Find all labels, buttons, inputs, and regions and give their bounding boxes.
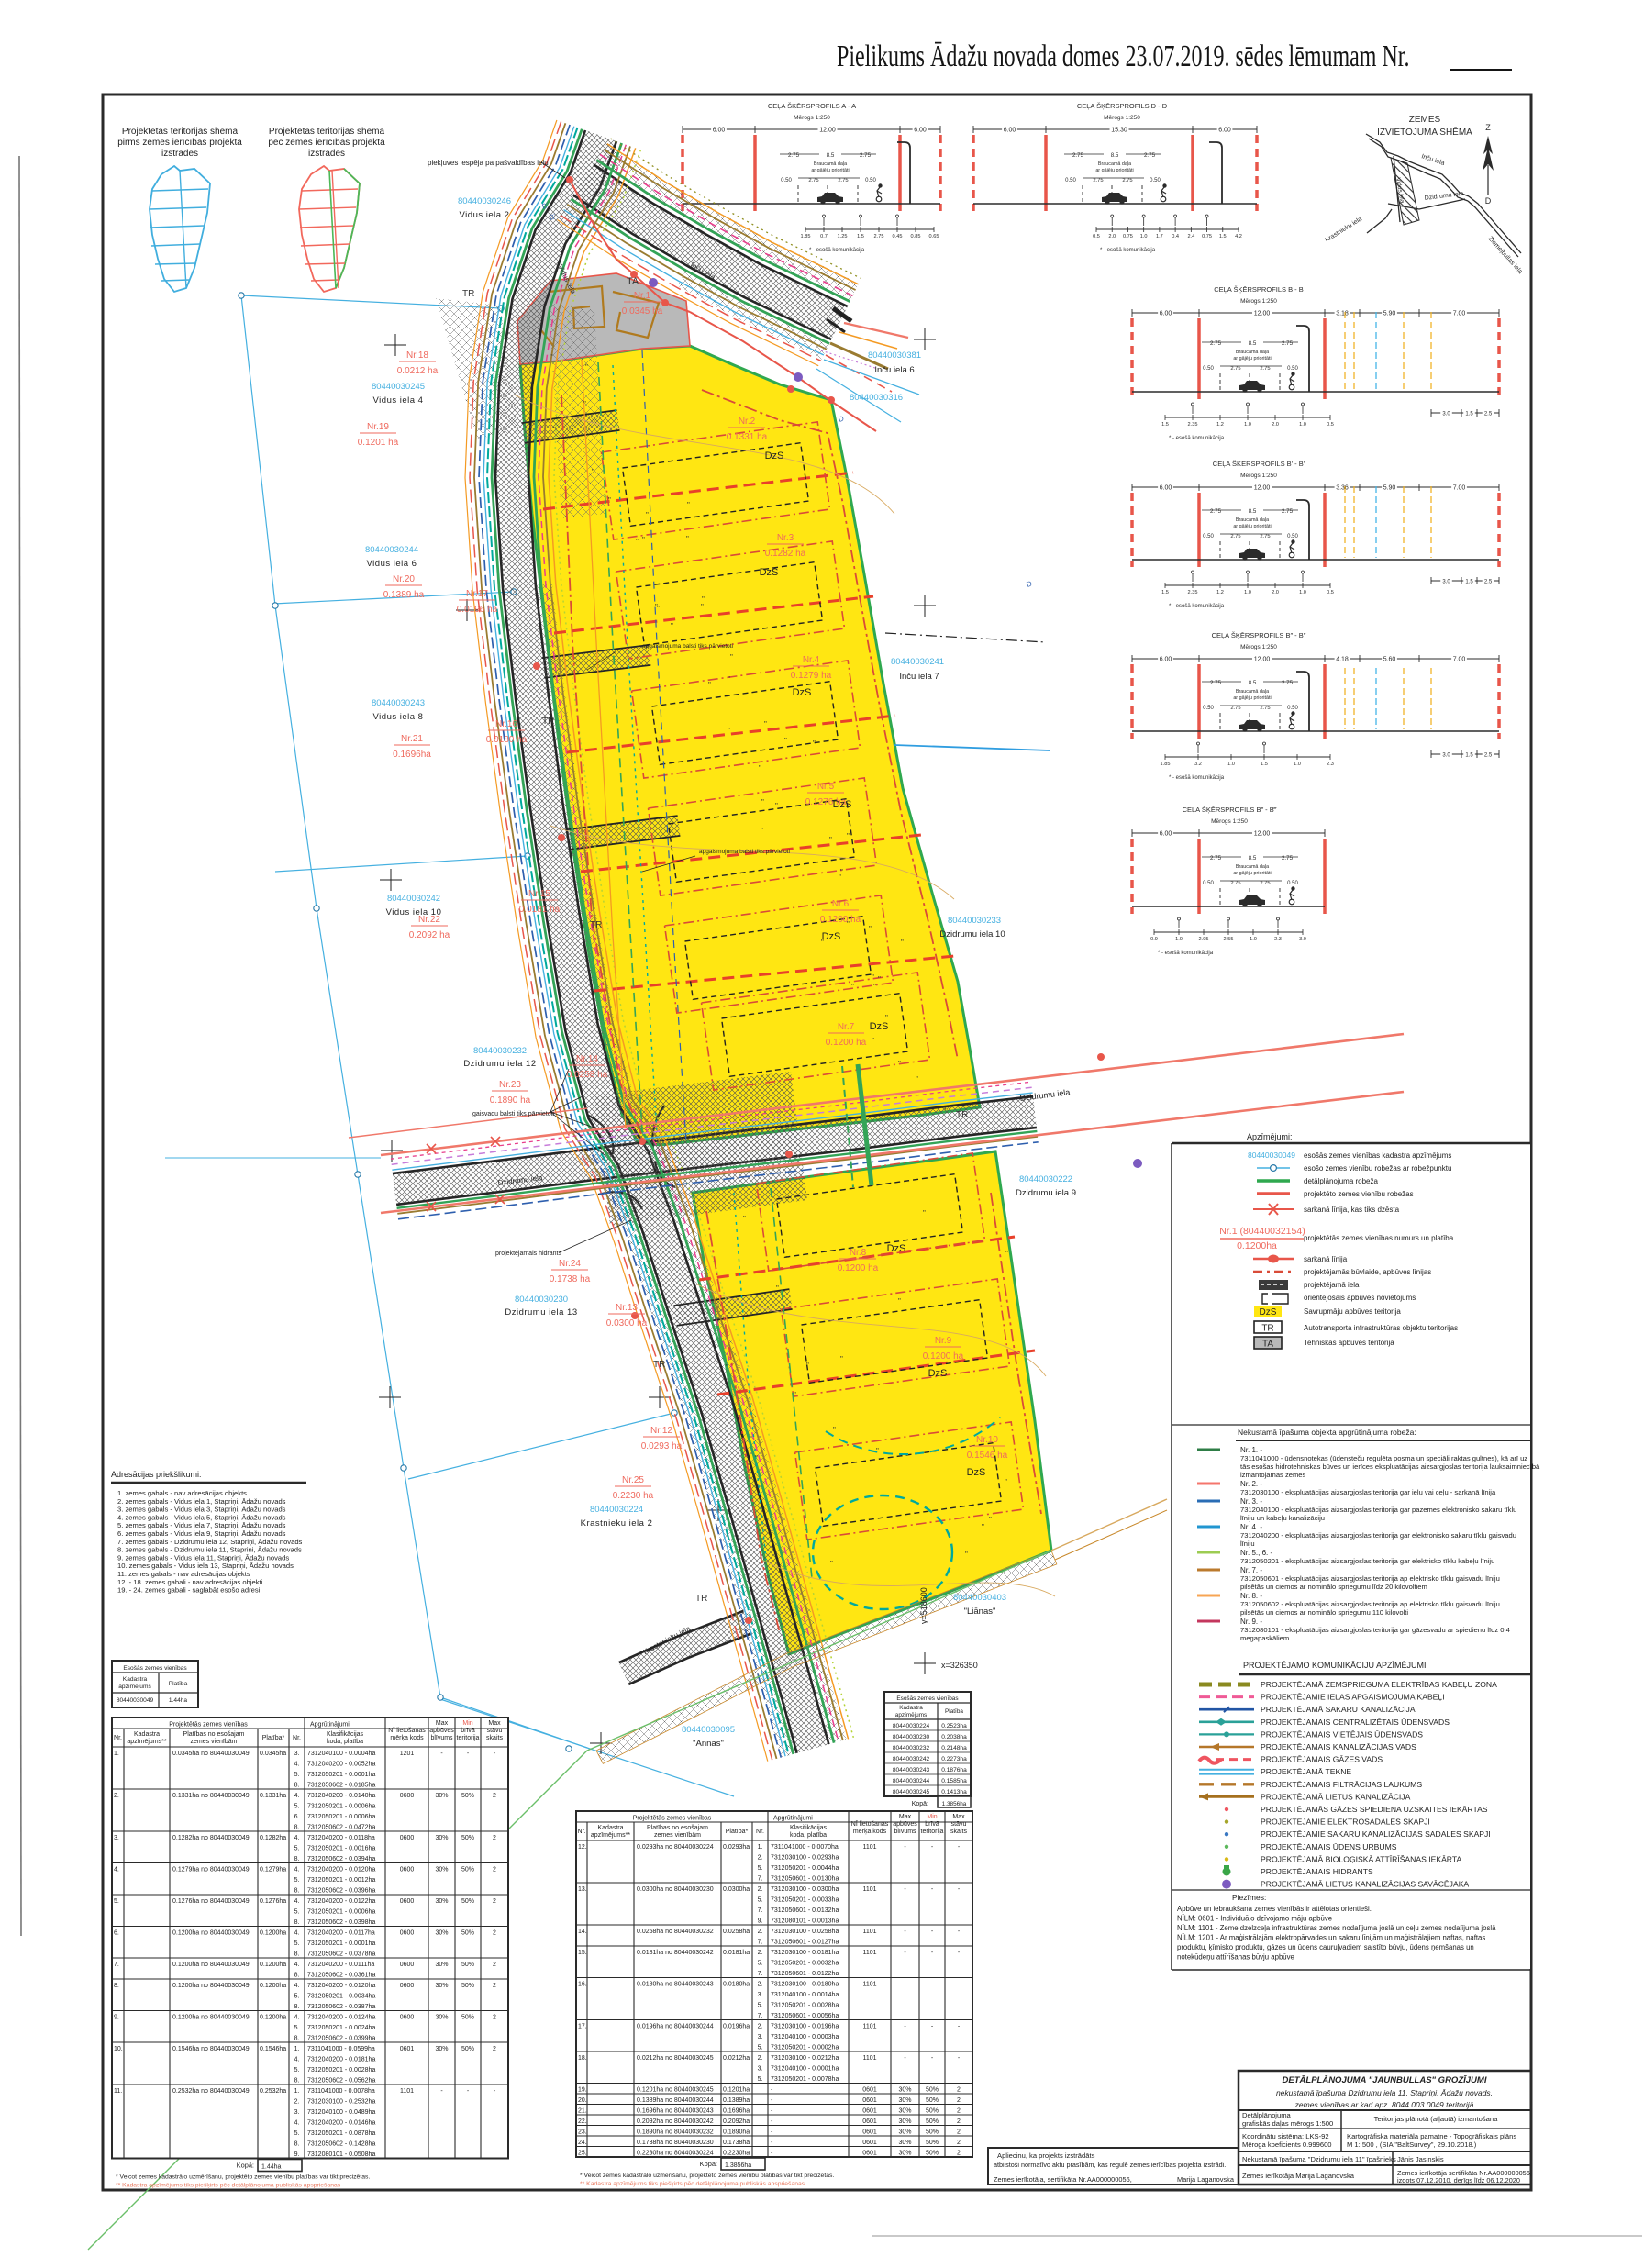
svg-text:2: 2 bbox=[957, 2087, 961, 2094]
svg-text:80440030243: 80440030243 bbox=[372, 698, 425, 708]
svg-text:Pielikums Ādažu novada domes 2: Pielikums Ādažu novada domes 23.07.2019.… bbox=[837, 39, 1409, 73]
svg-text:7312050602 - 0.0185ha: 7312050602 - 0.0185ha bbox=[307, 1783, 375, 1789]
svg-text:2.: 2. bbox=[758, 1982, 763, 1988]
svg-text:": " bbox=[839, 873, 841, 882]
svg-text:": " bbox=[776, 1284, 779, 1293]
svg-text:0.50: 0.50 bbox=[1203, 706, 1214, 711]
svg-text:0.0345ha no 80440030049: 0.0345ha no 80440030049 bbox=[172, 1751, 250, 1757]
svg-text:1.0: 1.0 bbox=[1244, 422, 1251, 428]
svg-text:30%: 30% bbox=[898, 2151, 911, 2157]
svg-text:": " bbox=[761, 798, 764, 806]
svg-text:Nekustamā īpašuma "Dzidrumu ie: Nekustamā īpašuma "Dzidrumu iela 11" īpa… bbox=[1242, 2155, 1396, 2163]
svg-text:Nr.22: Nr.22 bbox=[418, 915, 440, 925]
svg-text:2.: 2. bbox=[758, 2055, 763, 2062]
svg-text:80440030233: 80440030233 bbox=[948, 916, 1001, 926]
svg-text:7312040200 - 0.0052ha: 7312040200 - 0.0052ha bbox=[307, 1762, 375, 1768]
svg-text:30%: 30% bbox=[435, 1898, 448, 1905]
svg-text:4.: 4. bbox=[294, 1962, 300, 1968]
svg-text:4.: 4. bbox=[294, 1930, 300, 1937]
svg-text:7312050602 - ekspluatācijas ai: 7312050602 - ekspluatācijas aizsargjosla… bbox=[1240, 1600, 1500, 1608]
svg-text:0.5: 0.5 bbox=[1093, 234, 1100, 239]
svg-text:0.75: 0.75 bbox=[1123, 234, 1133, 239]
svg-text:PROJEKTĒJAMĀ LIETUS KANALIZĀCI: PROJEKTĒJAMĀ LIETUS KANALIZĀCIJAS SAVĀCĒ… bbox=[1261, 1880, 1469, 1889]
svg-text:80440030241: 80440030241 bbox=[891, 657, 944, 667]
svg-text:1.0: 1.0 bbox=[1294, 762, 1301, 767]
svg-text:0601: 0601 bbox=[862, 2151, 877, 2157]
svg-text:Dzidrumu iela: Dzidrumu iela bbox=[1019, 1087, 1071, 1103]
svg-text:D: D bbox=[1485, 196, 1492, 206]
svg-text:7312040100 - 0.0003ha: 7312040100 - 0.0003ha bbox=[771, 2034, 839, 2040]
svg-text:0.85: 0.85 bbox=[911, 234, 921, 239]
svg-text:2.75: 2.75 bbox=[1072, 152, 1084, 159]
svg-text:0.0293ha: 0.0293ha bbox=[723, 1844, 750, 1851]
svg-text:D: D bbox=[1026, 579, 1034, 589]
svg-text:2.75: 2.75 bbox=[1282, 340, 1294, 347]
svg-text:0.1546ha: 0.1546ha bbox=[260, 2046, 286, 2052]
svg-text:CEĻA ŠĶĒRSPROFILS B‴ - B‴: CEĻA ŠĶĒRSPROFILS B‴ - B‴ bbox=[1183, 806, 1277, 814]
svg-text:4.: 4. bbox=[294, 2015, 300, 2021]
svg-text:sarkanā līnija: sarkanā līnija bbox=[1304, 1255, 1348, 1263]
svg-text:PROJEKTĒJAMIE IELAS APGAISMOJU: PROJEKTĒJAMIE IELAS APGAISMOJUMA KABEĻI bbox=[1261, 1693, 1445, 1702]
svg-text:0.0258 ha: 0.0258 ha bbox=[567, 1070, 608, 1080]
svg-text:2.75: 2.75 bbox=[1230, 534, 1240, 539]
svg-text:20.: 20. bbox=[578, 2097, 587, 2104]
svg-text:2: 2 bbox=[957, 2129, 961, 2136]
svg-text:7312030100 - 0.0181ha: 7312030100 - 0.0181ha bbox=[771, 1950, 839, 1956]
svg-text:7312050201 - 0.0006ha: 7312050201 - 0.0006ha bbox=[307, 1814, 375, 1820]
svg-text:gaisvadu balsti tiks pārvietot: gaisvadu balsti tiks pārvietoti bbox=[472, 1111, 555, 1117]
svg-text:2.75: 2.75 bbox=[1260, 881, 1270, 886]
svg-text:1101: 1101 bbox=[862, 1950, 876, 1956]
svg-text:80440030381: 80440030381 bbox=[868, 350, 921, 361]
svg-text:14.: 14. bbox=[578, 1929, 587, 1935]
svg-text:Kopā:: Kopā: bbox=[237, 2162, 254, 2170]
svg-text:30%: 30% bbox=[435, 1867, 448, 1873]
svg-text:": " bbox=[1005, 1250, 1008, 1258]
svg-text:7311041000 - 0.0070ha: 7311041000 - 0.0070ha bbox=[771, 1844, 839, 1851]
svg-text:NĪLM: 1101 - Zeme dzelzceļa in: NĪLM: 1101 - Zeme dzelzceļa infrastruktū… bbox=[1177, 1924, 1496, 1932]
svg-text:3.2: 3.2 bbox=[1194, 762, 1202, 767]
svg-text:Max: Max bbox=[488, 1720, 501, 1727]
svg-text:0.0212 ha: 0.0212 ha bbox=[397, 366, 439, 376]
svg-text:Savrupmāju apbūves teritorija: Savrupmāju apbūves teritorija bbox=[1304, 1307, 1401, 1316]
svg-text:2.95: 2.95 bbox=[1199, 937, 1209, 942]
svg-text:": " bbox=[636, 538, 639, 546]
svg-text:2.75: 2.75 bbox=[808, 178, 818, 183]
svg-text:0.9: 0.9 bbox=[1150, 937, 1158, 942]
svg-text:": " bbox=[775, 802, 778, 810]
svg-text:": " bbox=[869, 925, 872, 933]
svg-text:4.18: 4.18 bbox=[1336, 657, 1349, 663]
svg-text:7312030100 - ekspluatācijas ai: 7312030100 - ekspluatācijas aizsargjosla… bbox=[1240, 1488, 1496, 1496]
svg-text:0.0181 ha: 0.0181 ha bbox=[519, 905, 561, 915]
svg-text:2: 2 bbox=[957, 2151, 961, 2157]
svg-text:50%: 50% bbox=[926, 2151, 939, 2157]
svg-text:2: 2 bbox=[957, 2108, 961, 2115]
svg-text:0.50: 0.50 bbox=[1287, 366, 1298, 372]
svg-text:80440030244: 80440030244 bbox=[893, 1778, 930, 1784]
svg-text:0.2092 ha: 0.2092 ha bbox=[409, 930, 450, 940]
svg-text:"Liānas": "Liānas" bbox=[964, 1606, 996, 1617]
svg-text:50%: 50% bbox=[461, 2046, 474, 2052]
svg-text:8.: 8. bbox=[114, 1983, 119, 1989]
svg-text:M 1: 500 , (SIA "BaltSurvey",: M 1: 500 , (SIA "BaltSurvey", 29.10.2018… bbox=[1347, 2140, 1477, 2149]
svg-text:0.5: 0.5 bbox=[1327, 422, 1334, 428]
svg-text:": " bbox=[560, 437, 562, 445]
svg-text:orientējošais apbūves novietoj: orientējošais apbūves novietojums bbox=[1304, 1294, 1416, 1302]
svg-text:30%: 30% bbox=[435, 2015, 448, 2021]
svg-text:7312050602 - 0.0562ha: 7312050602 - 0.0562ha bbox=[307, 2078, 375, 2085]
svg-text:7.: 7. bbox=[758, 1940, 763, 1946]
svg-text:7312050602 - 0.0394ha: 7312050602 - 0.0394ha bbox=[307, 1856, 375, 1862]
svg-text:80440030316: 80440030316 bbox=[850, 393, 903, 403]
svg-text:0.2230ha no 80440030224: 0.2230ha no 80440030224 bbox=[637, 2151, 714, 2157]
svg-text:0600: 0600 bbox=[400, 1930, 415, 1937]
svg-text:80440030403: 80440030403 bbox=[953, 1593, 1006, 1603]
svg-text:notekūdeņu attīrīšanas būvju a: notekūdeņu attīrīšanas būvju apbūve bbox=[1177, 1953, 1294, 1962]
svg-text:50%: 50% bbox=[926, 2140, 939, 2146]
svg-text:koda, platība: koda, platība bbox=[790, 1832, 827, 1839]
svg-text:": " bbox=[898, 1060, 901, 1068]
svg-text:1.0: 1.0 bbox=[1299, 590, 1306, 595]
svg-text:0.2273ha: 0.2273ha bbox=[941, 1756, 967, 1762]
svg-text:1101: 1101 bbox=[862, 1844, 876, 1851]
svg-text:apgaismojuma balsti tiks pārvi: apgaismojuma balsti tiks pārvietoti bbox=[642, 643, 733, 650]
svg-text:DzS: DzS bbox=[833, 799, 852, 810]
svg-text:5.: 5. bbox=[294, 1846, 300, 1852]
svg-text:3.18: 3.18 bbox=[1336, 311, 1349, 317]
svg-text:12.00: 12.00 bbox=[1254, 485, 1271, 492]
svg-text:atbilstoši normatīvo aktu pras: atbilstoši normatīvo aktu prasībām, kas … bbox=[994, 2161, 1226, 2169]
svg-text:Nr.4: Nr.4 bbox=[803, 655, 820, 665]
svg-text:NĪ lietošanas: NĪ lietošanas bbox=[388, 1727, 426, 1734]
svg-text:koda, platība: koda, platība bbox=[327, 1739, 363, 1745]
svg-text:7.: 7. bbox=[758, 1876, 763, 1883]
svg-text:7312040200 - 0.0140ha: 7312040200 - 0.0140ha bbox=[307, 1793, 375, 1799]
svg-text:Nr. 2. -: Nr. 2. - bbox=[1240, 1480, 1262, 1488]
svg-text:esošo zemes vienību robežas ar: esošo zemes vienību robežas ar robežpunk… bbox=[1304, 1164, 1451, 1173]
svg-text:8.: 8. bbox=[294, 1919, 300, 1926]
svg-text:PROJEKTĒJAMAIS CENTRALIZĒTAIS: PROJEKTĒJAMAIS CENTRALIZĒTAIS ŪDENSVADS bbox=[1261, 1718, 1450, 1727]
svg-text:2: 2 bbox=[493, 2015, 496, 2021]
svg-text:0.0181ha no 80440030242: 0.0181ha no 80440030242 bbox=[637, 1950, 714, 1956]
svg-text:6.: 6. bbox=[114, 1930, 119, 1937]
svg-text:zemes vienības ar kad.apz. 804: zemes vienības ar kad.apz. 8044 003 0049… bbox=[1294, 2100, 1474, 2109]
svg-text:Autotransporta infrastruktūras: Autotransporta infrastruktūras objektu t… bbox=[1304, 1324, 1458, 1332]
svg-text:80440030222: 80440030222 bbox=[1019, 1174, 1072, 1184]
svg-text:Esošās zemes vienības: Esošās zemes vienības bbox=[123, 1665, 187, 1672]
svg-text:": " bbox=[982, 1523, 984, 1531]
svg-text:1.5: 1.5 bbox=[857, 234, 864, 239]
svg-text:Nr.12: Nr.12 bbox=[650, 1426, 672, 1436]
svg-text:2.75: 2.75 bbox=[1230, 706, 1240, 711]
svg-text:6.00: 6.00 bbox=[1218, 128, 1231, 134]
svg-text:": " bbox=[872, 1037, 874, 1045]
svg-text:0.5: 0.5 bbox=[1327, 590, 1334, 595]
svg-text:** Kadastra apzīmējums tiks pi: ** Kadastra apzīmējums tiks piešķirts pē… bbox=[116, 2183, 341, 2189]
svg-text:CEĻA ŠĶĒRSPROFILS B' - B': CEĻA ŠĶĒRSPROFILS B' - B' bbox=[1213, 460, 1305, 468]
svg-text:8.5: 8.5 bbox=[1249, 680, 1257, 686]
svg-text:Nr.17: Nr.17 bbox=[466, 589, 488, 599]
svg-text:0.1890 ha: 0.1890 ha bbox=[490, 1095, 531, 1106]
svg-text:0.1200ha: 0.1200ha bbox=[1237, 1240, 1277, 1251]
svg-text:7312050602 - 0.0361ha: 7312050602 - 0.0361ha bbox=[307, 1973, 375, 1979]
svg-text:7312050201 - 0.0001ha: 7312050201 - 0.0001ha bbox=[307, 1940, 375, 1947]
svg-text:* Veicot zemes kadastrālo uzmē: * Veicot zemes kadastrālo uzmērīšanu, pr… bbox=[580, 2173, 834, 2179]
svg-text:80440030232: 80440030232 bbox=[473, 1046, 527, 1056]
svg-text:TA: TA bbox=[627, 276, 639, 287]
svg-text:2.5: 2.5 bbox=[1484, 412, 1493, 417]
svg-text:Dzidrumu iela 12: Dzidrumu iela 12 bbox=[463, 1059, 536, 1069]
svg-text:0.1696ha no 80440030243: 0.1696ha no 80440030243 bbox=[637, 2108, 714, 2115]
svg-text:2.75: 2.75 bbox=[1260, 366, 1270, 372]
svg-text:7312050201 - 0.0878ha: 7312050201 - 0.0878ha bbox=[307, 2130, 375, 2137]
svg-text:": " bbox=[878, 975, 881, 984]
svg-text:": " bbox=[702, 595, 705, 604]
svg-text:NĪ lietošanas: NĪ lietošanas bbox=[851, 1820, 889, 1828]
svg-text:Inču iela 6: Inču iela 6 bbox=[874, 365, 914, 375]
svg-text:Min: Min bbox=[927, 1814, 937, 1820]
svg-text:2: 2 bbox=[493, 1867, 496, 1873]
svg-text:7312050602 - 0.0396ha: 7312050602 - 0.0396ha bbox=[307, 1888, 375, 1895]
svg-text:2.: 2. bbox=[758, 1886, 763, 1893]
svg-text:Nr.16: Nr.16 bbox=[495, 719, 517, 729]
svg-text:apgaismojuma balsti tiks pārvi: apgaismojuma balsti tiks pārvietoti bbox=[699, 849, 790, 855]
svg-text:Kadastra: Kadastra bbox=[899, 1705, 923, 1711]
svg-text:Nr.3: Nr.3 bbox=[777, 533, 794, 543]
svg-text:mērķa kods: mērķa kods bbox=[390, 1735, 424, 1741]
svg-text:50%: 50% bbox=[461, 1835, 474, 1841]
svg-text:7312050201 - ekspluatācijas ai: 7312050201 - ekspluatācijas aizsargjosla… bbox=[1240, 1557, 1494, 1565]
svg-text:1.0: 1.0 bbox=[1244, 590, 1251, 595]
svg-text:Kartogrāfiska materiāla pamatn: Kartogrāfiska materiāla pamatne - Topogr… bbox=[1347, 2132, 1516, 2140]
svg-text:0.1201ha no 80440030245: 0.1201ha no 80440030245 bbox=[637, 2087, 714, 2094]
svg-text:": " bbox=[784, 737, 787, 745]
svg-text:DzS: DzS bbox=[870, 1021, 889, 1032]
svg-text:ar gājēju prioritāti: ar gājēju prioritāti bbox=[1233, 871, 1271, 876]
svg-text:": " bbox=[923, 1209, 926, 1217]
svg-text:": " bbox=[708, 681, 711, 689]
svg-text:zemes vienībām: zemes vienībām bbox=[191, 1739, 238, 1745]
svg-text:Braucamā daļa: Braucamā daļa bbox=[1236, 864, 1269, 870]
svg-text:": " bbox=[872, 973, 874, 982]
svg-text:pilsētās un ciemos ar nominālo: pilsētās un ciemos ar nominālo spriegumu… bbox=[1240, 1608, 1408, 1617]
svg-text:8.: 8. bbox=[294, 2036, 300, 2042]
svg-text:projektētās zemes vienības num: projektētās zemes vienības numurs un pla… bbox=[1304, 1234, 1454, 1242]
svg-text:CEĻA ŠĶĒRSPROFILS D - D: CEĻA ŠĶĒRSPROFILS D - D bbox=[1077, 102, 1168, 110]
svg-text:0.1200ha: 0.1200ha bbox=[260, 1983, 286, 1989]
svg-text:0.1201 ha: 0.1201 ha bbox=[358, 438, 399, 448]
svg-text:8.5: 8.5 bbox=[1249, 508, 1257, 515]
svg-text:1.5: 1.5 bbox=[1465, 412, 1473, 417]
svg-text:0.1200ha: 0.1200ha bbox=[260, 1930, 286, 1937]
svg-text:1. zemes gabals - nav adresāci: 1. zemes gabals - nav adresācijas objekt… bbox=[117, 1489, 247, 1497]
svg-text:2.75: 2.75 bbox=[1260, 534, 1270, 539]
svg-text:Nr.13: Nr.13 bbox=[616, 1303, 638, 1313]
svg-text:3.: 3. bbox=[294, 1751, 300, 1757]
svg-text:0.1200ha no 80440030049: 0.1200ha no 80440030049 bbox=[172, 1930, 250, 1937]
svg-text:0.50: 0.50 bbox=[781, 178, 792, 183]
svg-text:0.50: 0.50 bbox=[1287, 881, 1298, 886]
svg-text:grafiskās daļas mērogs 1:500: grafiskās daļas mērogs 1:500 bbox=[1242, 2119, 1333, 2128]
svg-text:0.0180 ha: 0.0180 ha bbox=[486, 735, 528, 745]
svg-text:3.0: 3.0 bbox=[1442, 753, 1450, 759]
svg-text:Nr.18: Nr.18 bbox=[406, 350, 428, 361]
svg-text:1101: 1101 bbox=[862, 1982, 876, 1988]
svg-text:50%: 50% bbox=[461, 1793, 474, 1799]
svg-text:": " bbox=[553, 426, 556, 434]
svg-text:0.50: 0.50 bbox=[1203, 881, 1214, 886]
svg-text:līniju un kabeļu kanalizāciju: līniju un kabeļu kanalizāciju bbox=[1240, 1514, 1325, 1522]
svg-text:0.2038ha: 0.2038ha bbox=[941, 1734, 967, 1740]
svg-text:2.75: 2.75 bbox=[874, 234, 884, 239]
svg-text:Nr.7: Nr.7 bbox=[838, 1022, 855, 1032]
svg-text:8.5: 8.5 bbox=[827, 152, 835, 159]
svg-text:Nr.23: Nr.23 bbox=[499, 1080, 521, 1090]
svg-text:Platība: Platība bbox=[945, 1708, 963, 1715]
svg-text:": " bbox=[916, 1075, 918, 1084]
svg-text:2.: 2. bbox=[758, 1929, 763, 1935]
svg-text:50%: 50% bbox=[461, 1898, 474, 1905]
svg-text:0601: 0601 bbox=[862, 2087, 877, 2094]
svg-text:Nr. 7. -: Nr. 7. - bbox=[1240, 1566, 1262, 1574]
svg-text:7312050601 - 0.0127ha: 7312050601 - 0.0127ha bbox=[771, 1940, 839, 1946]
svg-text:0.0212ha no 80440030245: 0.0212ha no 80440030245 bbox=[637, 2055, 714, 2062]
svg-text:TR: TR bbox=[1261, 1324, 1273, 1334]
svg-text:Zemes ierīkotāja Marija Lagano: Zemes ierīkotāja Marija Laganovska bbox=[1242, 2172, 1355, 2180]
svg-text:": " bbox=[687, 501, 690, 509]
svg-text:80440030243: 80440030243 bbox=[893, 1767, 930, 1773]
svg-text:6.00: 6.00 bbox=[1160, 657, 1172, 663]
svg-text:PROJEKTĒJAMAIS VIETĒJAIS ŪDENS: PROJEKTĒJAMAIS VIETĒJAIS ŪDENSVADS bbox=[1261, 1729, 1423, 1739]
svg-text:0.50: 0.50 bbox=[1065, 178, 1076, 183]
svg-text:3.: 3. bbox=[758, 2066, 763, 2073]
svg-text:": " bbox=[847, 832, 850, 840]
svg-text:tās esošas hidrotehniskas būve: tās esošas hidrotehniskas būves un ierīc… bbox=[1240, 1462, 1540, 1471]
svg-text:0.0196 ha: 0.0196 ha bbox=[457, 605, 498, 615]
svg-text:2.75: 2.75 bbox=[1282, 508, 1294, 515]
svg-text:30%: 30% bbox=[898, 2118, 911, 2125]
svg-text:7312030100 - 0.0196ha: 7312030100 - 0.0196ha bbox=[771, 2024, 839, 2030]
svg-text:": " bbox=[876, 1447, 879, 1455]
svg-text:0.1738ha: 0.1738ha bbox=[723, 2140, 750, 2146]
svg-text:80440030049: 80440030049 bbox=[1248, 1151, 1295, 1160]
svg-text:0.0196ha no 80440030244: 0.0196ha no 80440030244 bbox=[637, 2024, 714, 2030]
svg-text:7312050201 - 0.0006ha: 7312050201 - 0.0006ha bbox=[307, 1909, 375, 1916]
svg-text:0.50: 0.50 bbox=[1287, 534, 1298, 539]
svg-text:7312050201 - 0.0028ha: 7312050201 - 0.0028ha bbox=[771, 2003, 839, 2009]
svg-text:50%: 50% bbox=[926, 2108, 939, 2115]
svg-text:": " bbox=[806, 1362, 809, 1370]
svg-text:": " bbox=[671, 622, 673, 630]
svg-text:0.1282ha: 0.1282ha bbox=[260, 1835, 286, 1841]
svg-text:DzS: DzS bbox=[887, 1243, 906, 1254]
svg-text:7312050201 - 0.0044ha: 7312050201 - 0.0044ha bbox=[771, 1865, 839, 1872]
svg-text:Inču iela 7: Inču iela 7 bbox=[899, 672, 939, 682]
svg-text:30%: 30% bbox=[898, 2108, 911, 2115]
svg-text:2.75: 2.75 bbox=[838, 178, 848, 183]
svg-text:7.: 7. bbox=[758, 2013, 763, 2019]
svg-text:Klasifikācijas: Klasifikācijas bbox=[790, 1825, 828, 1831]
svg-text:7312050602 - 0.0399ha: 7312050602 - 0.0399ha bbox=[307, 2036, 375, 2042]
svg-text:1.: 1. bbox=[114, 1751, 119, 1757]
svg-text:ar gājēju prioritāti: ar gājēju prioritāti bbox=[1233, 695, 1271, 701]
svg-text:* - esošā komunikācija: * - esošā komunikācija bbox=[1169, 436, 1225, 441]
svg-text:0600: 0600 bbox=[400, 1835, 415, 1841]
svg-text:Nr. 9. -: Nr. 9. - bbox=[1240, 1618, 1262, 1626]
svg-text:7312040200 - 0.0117ha: 7312040200 - 0.0117ha bbox=[307, 1930, 375, 1937]
svg-text:izdots 07.12.2010. derīgs līdz: izdots 07.12.2010. derīgs līdz 06.12.202… bbox=[1397, 2176, 1520, 2185]
svg-text:0600: 0600 bbox=[400, 1962, 415, 1968]
svg-text:Dzidrumu iela 13: Dzidrumu iela 13 bbox=[505, 1307, 577, 1317]
svg-text:** Kadastra apzīmējums tiks pi: ** Kadastra apzīmējums tiks piešķirts pē… bbox=[580, 2181, 805, 2187]
svg-text:Projektētās zemes vienības: Projektētās zemes vienības bbox=[169, 1722, 248, 1729]
svg-text:7.: 7. bbox=[758, 1907, 763, 1914]
svg-text:Nr.6: Nr.6 bbox=[832, 899, 850, 909]
svg-text:5.: 5. bbox=[294, 2025, 300, 2031]
svg-text:2.4: 2.4 bbox=[1187, 234, 1194, 239]
svg-text:1.85: 1.85 bbox=[1161, 762, 1171, 767]
svg-text:0.1331ha: 0.1331ha bbox=[260, 1793, 286, 1799]
svg-text:7312030100 - 0.0300ha: 7312030100 - 0.0300ha bbox=[771, 1886, 839, 1893]
svg-text:Platības no esošajam: Platības no esošajam bbox=[647, 1825, 708, 1831]
svg-text:Braucamā daļa: Braucamā daļa bbox=[1236, 350, 1269, 355]
svg-text:0600: 0600 bbox=[400, 1983, 415, 1989]
svg-text:TA: TA bbox=[1262, 1340, 1273, 1350]
svg-text:7312050601 - 0.0132ha: 7312050601 - 0.0132ha bbox=[771, 1907, 839, 1914]
svg-text:7312050601 - 0.0130ha: 7312050601 - 0.0130ha bbox=[771, 1876, 839, 1883]
svg-text:2.: 2. bbox=[294, 2099, 300, 2106]
svg-text:80440030246: 80440030246 bbox=[458, 196, 511, 206]
svg-text:0601: 0601 bbox=[862, 2097, 877, 2104]
svg-text:1.5: 1.5 bbox=[1465, 580, 1473, 585]
svg-text:esošās zemes vienības kadastra: esošās zemes vienības kadastra apzīmējum… bbox=[1304, 1151, 1451, 1160]
svg-text:7312030100 - 0.0180ha: 7312030100 - 0.0180ha bbox=[771, 1982, 839, 1988]
svg-text:": " bbox=[686, 535, 689, 543]
svg-text:Braucamā daļa: Braucamā daļa bbox=[814, 161, 847, 167]
svg-text:5.: 5. bbox=[294, 1940, 300, 1947]
svg-text:Nr.1 (80440032154): Nr.1 (80440032154) bbox=[1219, 1226, 1305, 1237]
svg-text:": " bbox=[728, 727, 730, 735]
svg-text:": " bbox=[829, 836, 832, 844]
svg-text:18.: 18. bbox=[578, 2055, 587, 2062]
svg-text:2.75: 2.75 bbox=[1093, 178, 1103, 183]
svg-text:0.1279ha no 80440030049: 0.1279ha no 80440030049 bbox=[172, 1867, 250, 1873]
svg-text:projektējamās būvlaide, apbūve: projektējamās būvlaide, apbūves līnijas bbox=[1304, 1268, 1431, 1276]
svg-text:12.00: 12.00 bbox=[1254, 657, 1271, 663]
svg-text:7312040100 - 0.0489ha: 7312040100 - 0.0489ha bbox=[307, 2109, 375, 2116]
svg-text:2: 2 bbox=[493, 1983, 496, 1989]
svg-text:": " bbox=[989, 1516, 992, 1524]
svg-text:CEĻA ŠĶĒRSPROFILS A - A: CEĻA ŠĶĒRSPROFILS A - A bbox=[768, 102, 856, 110]
svg-text:80440030242: 80440030242 bbox=[387, 894, 440, 904]
svg-text:": " bbox=[759, 764, 761, 773]
svg-text:1.7: 1.7 bbox=[1156, 234, 1163, 239]
svg-text:5.: 5. bbox=[758, 2076, 763, 2083]
svg-text:5.: 5. bbox=[294, 1877, 300, 1884]
svg-text:": " bbox=[764, 720, 767, 728]
svg-text:3.: 3. bbox=[114, 1835, 119, 1841]
svg-text:Nr.: Nr. bbox=[114, 1735, 122, 1741]
svg-text:": " bbox=[592, 468, 594, 476]
svg-text:7312050201 - 0.0078ha: 7312050201 - 0.0078ha bbox=[771, 2076, 839, 2083]
svg-text:Nr.21: Nr.21 bbox=[401, 734, 423, 744]
svg-text:1.: 1. bbox=[294, 2046, 300, 2052]
svg-text:0.1738 ha: 0.1738 ha bbox=[550, 1274, 591, 1284]
svg-text:50%: 50% bbox=[461, 2015, 474, 2021]
svg-text:": " bbox=[728, 675, 730, 684]
svg-text:Nr.15: Nr.15 bbox=[528, 889, 550, 899]
